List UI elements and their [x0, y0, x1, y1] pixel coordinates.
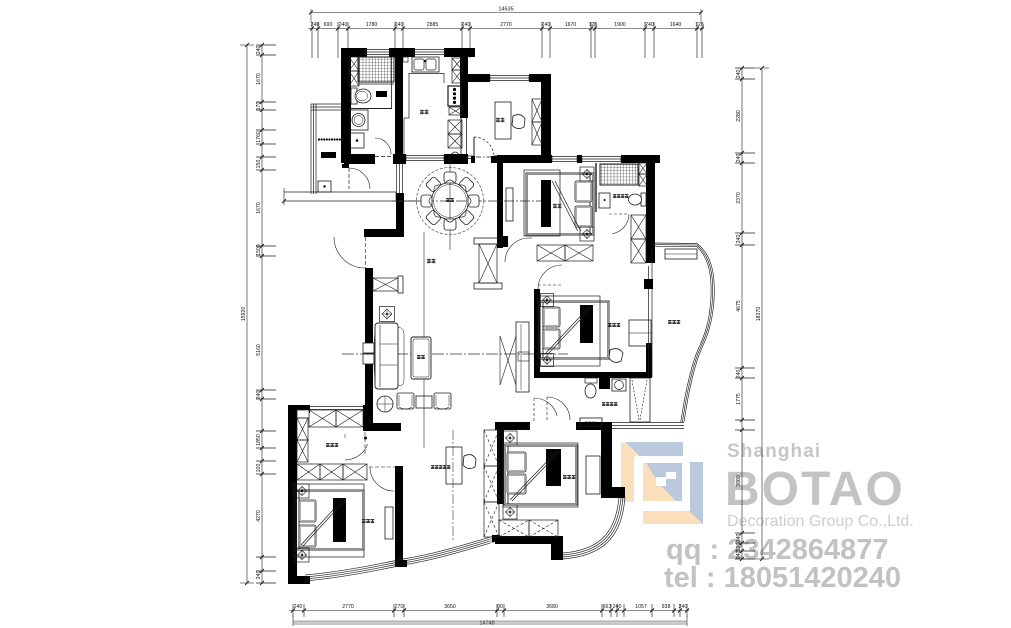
svg-text:270: 270 — [395, 604, 404, 610]
svg-text:240: 240 — [542, 22, 551, 28]
svg-text:14635: 14635 — [498, 7, 513, 13]
svg-text:240: 240 — [736, 154, 742, 163]
svg-text:3880: 3880 — [736, 475, 742, 487]
svg-text:240: 240 — [736, 551, 742, 560]
svg-text:240: 240 — [736, 370, 742, 379]
svg-text:240: 240 — [736, 70, 742, 79]
svg-text:2280: 2280 — [736, 110, 742, 122]
svg-text:240: 240 — [294, 604, 303, 610]
svg-text:240: 240 — [645, 22, 654, 28]
svg-text:1780: 1780 — [366, 22, 378, 28]
svg-text:15920: 15920 — [241, 307, 247, 322]
svg-text:170: 170 — [256, 102, 262, 111]
svg-text:18370: 18370 — [756, 307, 762, 322]
svg-text:240: 240 — [339, 22, 348, 28]
svg-text:3650: 3650 — [444, 604, 456, 610]
svg-text:240: 240 — [256, 571, 262, 580]
svg-text:Decoration Group Co.,Ltd.: Decoration Group Co.,Ltd. — [727, 513, 914, 530]
svg-text:1850: 1850 — [256, 434, 262, 446]
svg-text:150: 150 — [256, 160, 262, 169]
svg-text:2770: 2770 — [500, 22, 512, 28]
svg-text:240: 240 — [311, 22, 320, 28]
svg-text:1057: 1057 — [635, 604, 647, 610]
svg-text:tel : 18051420240: tel : 18051420240 — [664, 562, 901, 594]
svg-text:2770: 2770 — [342, 604, 354, 610]
svg-text:1670: 1670 — [256, 202, 262, 214]
svg-text:2370: 2370 — [736, 192, 742, 204]
svg-text:1760: 1760 — [256, 131, 262, 143]
svg-text:4270: 4270 — [256, 510, 262, 522]
svg-text:BOTAO: BOTAO — [725, 463, 905, 516]
svg-text:1775: 1775 — [736, 393, 742, 405]
svg-text:663: 663 — [603, 604, 612, 610]
svg-text:240: 240 — [395, 22, 404, 28]
svg-text:3680: 3680 — [546, 604, 558, 610]
svg-text:1670: 1670 — [256, 73, 262, 85]
svg-text:240: 240 — [256, 391, 262, 400]
svg-text:4675: 4675 — [736, 300, 742, 312]
svg-text:14748: 14748 — [479, 621, 494, 627]
svg-text:90: 90 — [497, 604, 503, 610]
svg-text:240: 240 — [613, 604, 622, 610]
svg-text:240: 240 — [736, 534, 742, 543]
svg-text:690: 690 — [324, 22, 333, 28]
svg-text:1900: 1900 — [614, 22, 626, 28]
svg-text:125: 125 — [695, 22, 704, 28]
svg-text:125: 125 — [589, 22, 598, 28]
svg-text:1500: 1500 — [256, 244, 262, 256]
svg-text:240: 240 — [462, 22, 471, 28]
svg-text:2885: 2885 — [427, 22, 439, 28]
svg-text:240: 240 — [736, 235, 742, 244]
svg-text:240: 240 — [256, 46, 262, 55]
svg-text:240: 240 — [679, 604, 688, 610]
svg-text:1670: 1670 — [565, 22, 577, 28]
svg-text:5160: 5160 — [256, 344, 262, 356]
svg-text:938: 938 — [662, 604, 671, 610]
svg-text:DESK: DESK — [585, 421, 597, 426]
svg-text:100: 100 — [256, 464, 262, 473]
svg-text:1640: 1640 — [670, 22, 682, 28]
svg-text:Shanghai: Shanghai — [727, 441, 821, 462]
svg-text:520: 520 — [736, 543, 742, 552]
